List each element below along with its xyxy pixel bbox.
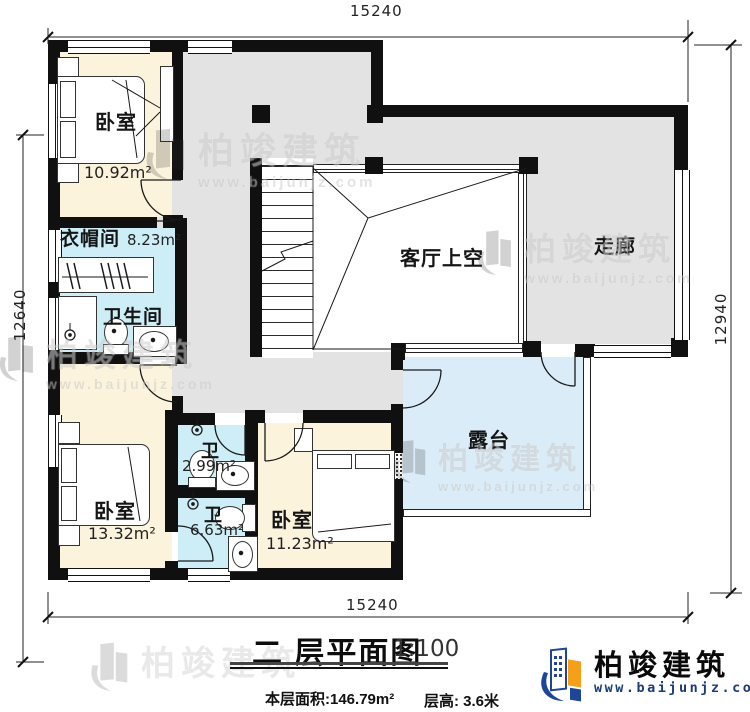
drawing-scale: 1:100 bbox=[393, 636, 459, 662]
toilet-base bbox=[188, 477, 216, 488]
room-label-bedroom-bc: 卧室 bbox=[271, 504, 313, 533]
nightstand bbox=[294, 428, 313, 452]
pillow bbox=[60, 121, 76, 158]
window-corridor-bottom bbox=[594, 345, 671, 358]
watermark: 柏竣建筑 www.baijunjz.com bbox=[140, 122, 366, 192]
closet bbox=[58, 257, 154, 293]
sink-basin bbox=[232, 541, 253, 568]
floor-height-text: 层高: 3.6米 bbox=[424, 690, 499, 711]
room-area-wc-small: 2.99m² bbox=[182, 457, 236, 475]
nightstand bbox=[58, 422, 80, 444]
watermark: 柏竣建筑 www.baijunjz.com bbox=[472, 224, 676, 288]
watermark-url: www.baijunjz.com bbox=[198, 174, 375, 191]
window-corridor-right bbox=[674, 170, 690, 340]
column-void-tr bbox=[519, 157, 538, 174]
staircase bbox=[262, 165, 313, 358]
room-area-wc-large: 6.63m² bbox=[190, 521, 244, 539]
column-void-tl bbox=[365, 157, 383, 174]
void-railing-bottom bbox=[405, 343, 523, 353]
window-top-2 bbox=[188, 40, 232, 54]
pillow bbox=[61, 448, 77, 483]
nightstand bbox=[57, 57, 79, 77]
dim-top: 15240 bbox=[350, 2, 403, 20]
wall-corridor-right-corner bbox=[674, 117, 688, 170]
watermark: 柏竣建筑 www.baijunjz.com bbox=[388, 434, 582, 496]
pillow bbox=[355, 454, 390, 469]
floor-area-text: 本层面积:146.79m² bbox=[265, 688, 394, 709]
window-bottom-1 bbox=[68, 568, 150, 582]
dim-right: 12940 bbox=[712, 289, 730, 349]
title-underline-2 bbox=[230, 667, 448, 669]
column-hall bbox=[252, 105, 270, 123]
column-step bbox=[367, 105, 383, 123]
brand-name: 柏竣建筑 bbox=[594, 642, 730, 684]
room-area-bedroom-bl: 13.32m² bbox=[88, 524, 156, 543]
nightstand bbox=[57, 163, 79, 183]
title-underline-1 bbox=[230, 662, 448, 665]
brand-url: www.baijunjz.com bbox=[594, 680, 750, 696]
floor-plan-page: 卧室 10.92m² 衣帽间 8.23m² 卫生间 客厅上空 走廊 卫 2.99… bbox=[0, 0, 750, 712]
wall-bed3-top-b bbox=[303, 410, 403, 423]
room-label-cloakroom: 衣帽间 bbox=[60, 224, 120, 251]
brand-logo-icon bbox=[534, 644, 590, 702]
wall-corridor-bottom-a bbox=[575, 344, 595, 357]
nightstand bbox=[58, 524, 80, 546]
window-bottom-2 bbox=[188, 568, 230, 582]
watermark: 柏竣建筑 www.baijunjz.com bbox=[0, 330, 198, 394]
room-area-cloakroom: 8.23m² bbox=[127, 231, 181, 249]
room-label-bedroom-bl: 卧室 bbox=[94, 495, 136, 524]
column-void-bl bbox=[391, 343, 405, 360]
column-corridor-bw bbox=[523, 341, 541, 357]
column-corridor-br bbox=[671, 338, 688, 357]
terrace-parapet-bottom bbox=[403, 509, 591, 517]
brand-logo: 柏竣建筑 www.baijunjz.com bbox=[534, 640, 744, 706]
window-top-1 bbox=[68, 40, 150, 54]
wall-wc-left-a bbox=[165, 410, 178, 532]
wall-bed3-top-a bbox=[245, 410, 265, 423]
dim-bottom: 15240 bbox=[346, 596, 399, 614]
room-area-bedroom-bc: 11.23m² bbox=[266, 534, 334, 553]
dim-line-left bbox=[16, 135, 44, 662]
wall-wc-left-b bbox=[165, 561, 178, 580]
pillow bbox=[61, 486, 77, 521]
wall-corridor-top bbox=[371, 105, 688, 117]
pillow bbox=[60, 81, 76, 118]
wall-step bbox=[371, 52, 383, 112]
room-label-bedroom-tl: 卧室 bbox=[95, 106, 137, 135]
pillow bbox=[317, 454, 352, 469]
watermark-name: 柏竣建筑 bbox=[198, 130, 366, 171]
watermark-logo-icon bbox=[140, 122, 192, 180]
room-label-bathroom: 卫生间 bbox=[103, 302, 163, 329]
wall-wc-top bbox=[165, 413, 215, 425]
